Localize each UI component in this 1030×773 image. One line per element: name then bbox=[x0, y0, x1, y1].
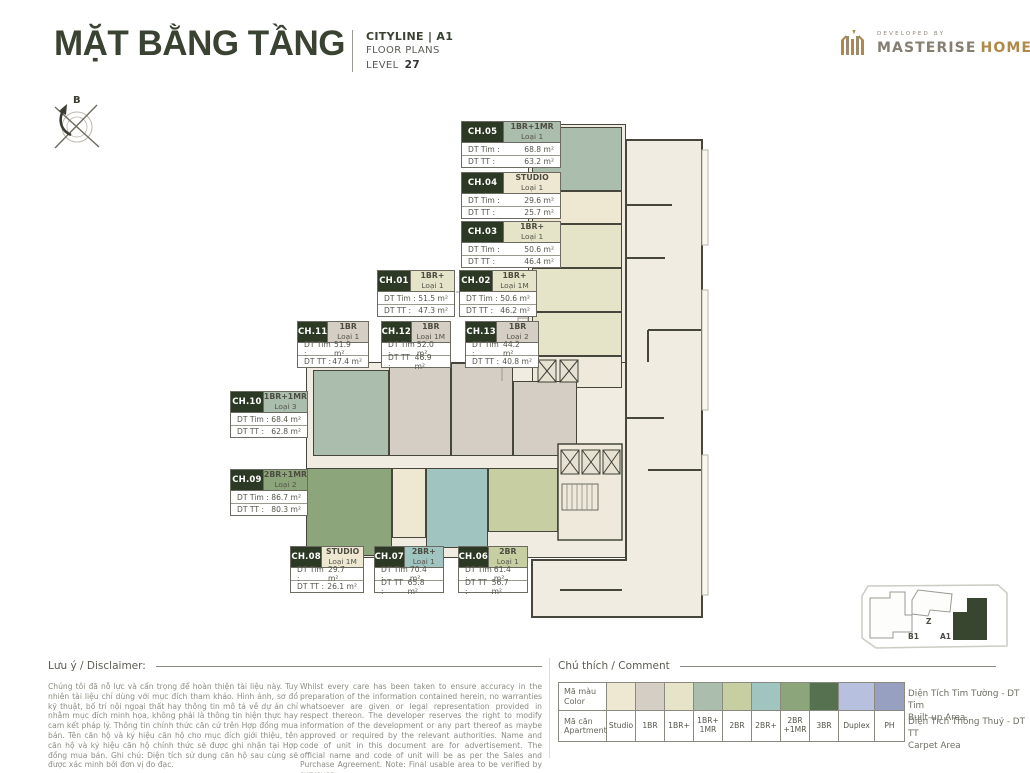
unit-builtup-row: DT Tim :29.6 m² bbox=[462, 194, 560, 206]
unit-label-ch01: CH.01 1BR+Loại 1 DT Tim :51.5 m² DT TT :… bbox=[377, 270, 455, 317]
unit-type-cell: 2BRLoại 1 bbox=[488, 547, 527, 567]
unit-type-cell: STUDIOLoại 1 bbox=[503, 173, 560, 193]
legend-item: PH bbox=[875, 683, 904, 741]
unit-id-badge: CH.11 bbox=[298, 322, 327, 342]
unit-carpet-row: DT TT :46.9 m² bbox=[382, 355, 450, 367]
unit-carpet-row: DT TT :47.3 m² bbox=[378, 304, 454, 316]
floor-plan-page: MẶT BẰNG TẦNG CITYLINE | A1 FLOOR PLANS … bbox=[0, 0, 1030, 773]
unit-builtup-row: DT Tim :51.9 m² bbox=[298, 343, 368, 355]
legend-swatch bbox=[694, 683, 722, 711]
unit-id-badge: CH.06 bbox=[459, 547, 488, 567]
unit-carpet-row: DT TT :46.2 m² bbox=[460, 304, 536, 316]
unit-id-badge: CH.08 bbox=[291, 547, 321, 567]
legend-swatch bbox=[723, 683, 751, 711]
unit-area-ch02 bbox=[532, 268, 622, 312]
project-name: CITYLINE | A1 bbox=[366, 30, 453, 44]
legend-swatch bbox=[810, 683, 838, 711]
unit-carpet-row: DT TT :63.2 m² bbox=[462, 155, 560, 167]
legend-item: 1BR+ bbox=[665, 683, 694, 741]
legend-color-header: Mã màuColor bbox=[559, 683, 606, 711]
unit-id-badge: CH.10 bbox=[231, 392, 263, 412]
unit-builtup-row: DT Tim :50.6 m² bbox=[460, 292, 536, 304]
legend-swatch bbox=[875, 683, 904, 711]
unit-area-ch01 bbox=[532, 312, 622, 356]
legend-note-carpet: Diện Tích Thông Thuỷ - DT TT Carpet Area bbox=[908, 716, 1026, 752]
unit-label-ch11: CH.11 1BRLoại 1 DT Tim :51.9 m² DT TT :4… bbox=[297, 321, 369, 368]
balcony-strips bbox=[702, 150, 708, 595]
unit-label-ch10: CH.10 1BR+1MRLoại 3 DT Tim :68.4 m² DT T… bbox=[230, 391, 308, 438]
unit-type-cell: 1BR+1MRLoại 3 bbox=[263, 392, 307, 412]
legend-swatch bbox=[665, 683, 693, 711]
unit-area-ch11 bbox=[389, 363, 451, 456]
unit-type-cell: 1BR+Loại 1 bbox=[410, 271, 454, 291]
unit-area-ch08 bbox=[392, 468, 426, 538]
key-plan-label-z: Z bbox=[926, 617, 932, 626]
legend-heading: Chú thích / Comment bbox=[558, 660, 996, 672]
heading-rule bbox=[156, 666, 542, 667]
heading-rule bbox=[680, 666, 996, 667]
developer-logo: DEVELOPED BY MASTERISEHOMES bbox=[840, 28, 1030, 58]
brand-name: MASTERISEHOMES bbox=[877, 40, 1030, 56]
legend-swatch bbox=[607, 683, 635, 711]
legend-item: Studio bbox=[607, 683, 636, 741]
unit-type-cell: 1BR+Loại 1 bbox=[503, 222, 560, 242]
legend-item: 2BR bbox=[723, 683, 752, 741]
legend-swatch bbox=[839, 683, 874, 711]
unit-builtup-row: DT Tim :68.4 m² bbox=[231, 413, 307, 425]
unit-area-ch10 bbox=[313, 370, 389, 456]
key-plan-label-a1: A1 bbox=[940, 632, 951, 641]
unit-builtup-row: DT Tim :29.7 m² bbox=[291, 568, 363, 580]
unit-type-cell: 1BR+Loại 1M bbox=[492, 271, 536, 291]
disclaimer-heading: Lưu ý / Disclaimer: bbox=[48, 660, 542, 672]
unit-carpet-row: DT TT :47.4 m² bbox=[298, 355, 368, 367]
unit-type-cell: 1BRLoại 2 bbox=[496, 322, 538, 342]
unit-label-ch08: CH.08 STUDIOLoại 1M DT Tim :29.7 m² DT T… bbox=[290, 546, 364, 593]
legend-swatch bbox=[636, 683, 664, 711]
compass-icon: B bbox=[46, 92, 106, 152]
unit-carpet-row: DT TT :26.1 m² bbox=[291, 580, 363, 592]
unit-area-ch13 bbox=[513, 381, 577, 456]
legend-item: 3BR bbox=[810, 683, 839, 741]
unit-carpet-row: DT TT :80.3 m² bbox=[231, 503, 307, 515]
plans-label: FLOOR PLANS bbox=[366, 44, 453, 58]
unit-builtup-row: DT Tim :68.8 m² bbox=[462, 143, 560, 155]
key-plan-building-b1 bbox=[870, 592, 912, 638]
legend-item: 1BR bbox=[636, 683, 665, 741]
unit-carpet-row: DT TT :62.8 m² bbox=[231, 425, 307, 437]
unit-builtup-row: DT Tim :86.7 m² bbox=[231, 491, 307, 503]
unit-builtup-row: DT Tim :51.5 m² bbox=[378, 292, 454, 304]
unit-id-badge: CH.07 bbox=[375, 547, 404, 567]
unit-type-cell: 1BRLoại 1 bbox=[327, 322, 368, 342]
unit-carpet-row: DT TT :56.7 m² bbox=[459, 580, 527, 592]
unit-type-cell: 1BR+1MRLoại 1 bbox=[503, 122, 560, 142]
unit-label-ch02: CH.02 1BR+Loại 1M DT Tim :50.6 m² DT TT … bbox=[459, 270, 537, 317]
unit-label-ch07: CH.07 2BR+Loại 1 DT Tim :70.4 m² DT TT :… bbox=[374, 546, 444, 593]
key-plan-building-a1-highlight bbox=[953, 598, 987, 640]
unit-label-ch09: CH.09 2BR+1MRLoại 2 DT Tim :86.7 m² DT T… bbox=[230, 469, 308, 516]
unit-type-cell: 2BR+Loại 1 bbox=[404, 547, 443, 567]
legend-item: 1BR+ 1MR bbox=[694, 683, 723, 741]
unit-label-ch13: CH.13 1BRLoại 2 DT Tim :44.2 m² DT TT :4… bbox=[465, 321, 539, 368]
unit-id-badge: CH.13 bbox=[466, 322, 496, 342]
developed-by-label: DEVELOPED BY bbox=[877, 31, 1030, 37]
unit-carpet-row: DT TT :25.7 m² bbox=[462, 206, 560, 218]
unit-id-badge: CH.03 bbox=[462, 222, 503, 242]
unit-type-cell: 1BRLoại 1M bbox=[411, 322, 450, 342]
unit-label-ch06: CH.06 2BRLoại 1 DT Tim :61.4 m² DT TT :5… bbox=[458, 546, 528, 593]
legend-apartment-header: Mã cănApartment bbox=[559, 711, 606, 741]
svg-text:B: B bbox=[73, 95, 81, 106]
unit-id-badge: CH.02 bbox=[460, 271, 492, 291]
key-plan-label-b1: B1 bbox=[908, 632, 919, 641]
unit-area-ch07 bbox=[426, 468, 488, 548]
disclaimer-text-vi: Chúng tôi đã nỗ lực và cẩn trọng để hoàn… bbox=[48, 682, 298, 770]
unit-area-ch09 bbox=[306, 468, 392, 556]
header-meta: CITYLINE | A1 FLOOR PLANS LEVEL27 bbox=[366, 30, 453, 73]
header-divider bbox=[352, 30, 353, 72]
legend-item: 2BR +1MR bbox=[781, 683, 810, 741]
unit-id-badge: CH.09 bbox=[231, 470, 263, 490]
unit-area-ch12 bbox=[451, 363, 513, 456]
unit-label-ch03: CH.03 1BR+Loại 1 DT Tim :50.6 m² DT TT :… bbox=[461, 221, 561, 268]
level-value: 27 bbox=[405, 59, 420, 71]
legend-item: Duplex bbox=[839, 683, 875, 741]
key-plan: Z B1 A1 bbox=[858, 580, 1014, 654]
legend-swatch bbox=[781, 683, 809, 711]
level-label: LEVEL27 bbox=[366, 58, 453, 73]
unit-carpet-row: DT TT :46.4 m² bbox=[462, 255, 560, 267]
footer-divider bbox=[549, 658, 550, 758]
unit-id-badge: CH.05 bbox=[462, 122, 503, 142]
unit-builtup-row: DT Tim :50.6 m² bbox=[462, 243, 560, 255]
legend-item: 2BR+ bbox=[752, 683, 781, 741]
unit-id-badge: CH.12 bbox=[382, 322, 411, 342]
unit-builtup-row: DT Tim :44.2 m² bbox=[466, 343, 538, 355]
legend-table: Mã màuColor Mã cănApartment Studio 1BR 1… bbox=[558, 682, 905, 742]
unit-type-cell: STUDIOLoại 1M bbox=[321, 547, 363, 567]
page-title: MẶT BẰNG TẦNG bbox=[54, 24, 345, 64]
unit-label-ch04: CH.04 STUDIOLoại 1 DT Tim :29.6 m² DT TT… bbox=[461, 172, 561, 219]
unit-carpet-row: DT TT :40.8 m² bbox=[466, 355, 538, 367]
unit-id-badge: CH.04 bbox=[462, 173, 503, 193]
unit-label-ch12: CH.12 1BRLoại 1M DT Tim :52.0 m² DT TT :… bbox=[381, 321, 451, 368]
masterise-logo-icon bbox=[840, 28, 868, 58]
unit-label-ch05: CH.05 1BR+1MRLoại 1 DT Tim :68.8 m² DT T… bbox=[461, 121, 561, 168]
unit-carpet-row: DT TT :65.8 m² bbox=[375, 580, 443, 592]
unit-id-badge: CH.01 bbox=[378, 271, 410, 291]
legend-swatch bbox=[752, 683, 780, 711]
legend-header-column: Mã màuColor Mã cănApartment bbox=[559, 683, 607, 741]
logo-text: DEVELOPED BY MASTERISEHOMES bbox=[877, 31, 1030, 56]
unit-area-ch06 bbox=[488, 468, 558, 532]
key-plan-building-z bbox=[912, 590, 952, 616]
disclaimer-text-en: Whilst every care has been taken to ensu… bbox=[300, 682, 542, 773]
unit-type-cell: 2BR+1MRLoại 2 bbox=[263, 470, 307, 490]
